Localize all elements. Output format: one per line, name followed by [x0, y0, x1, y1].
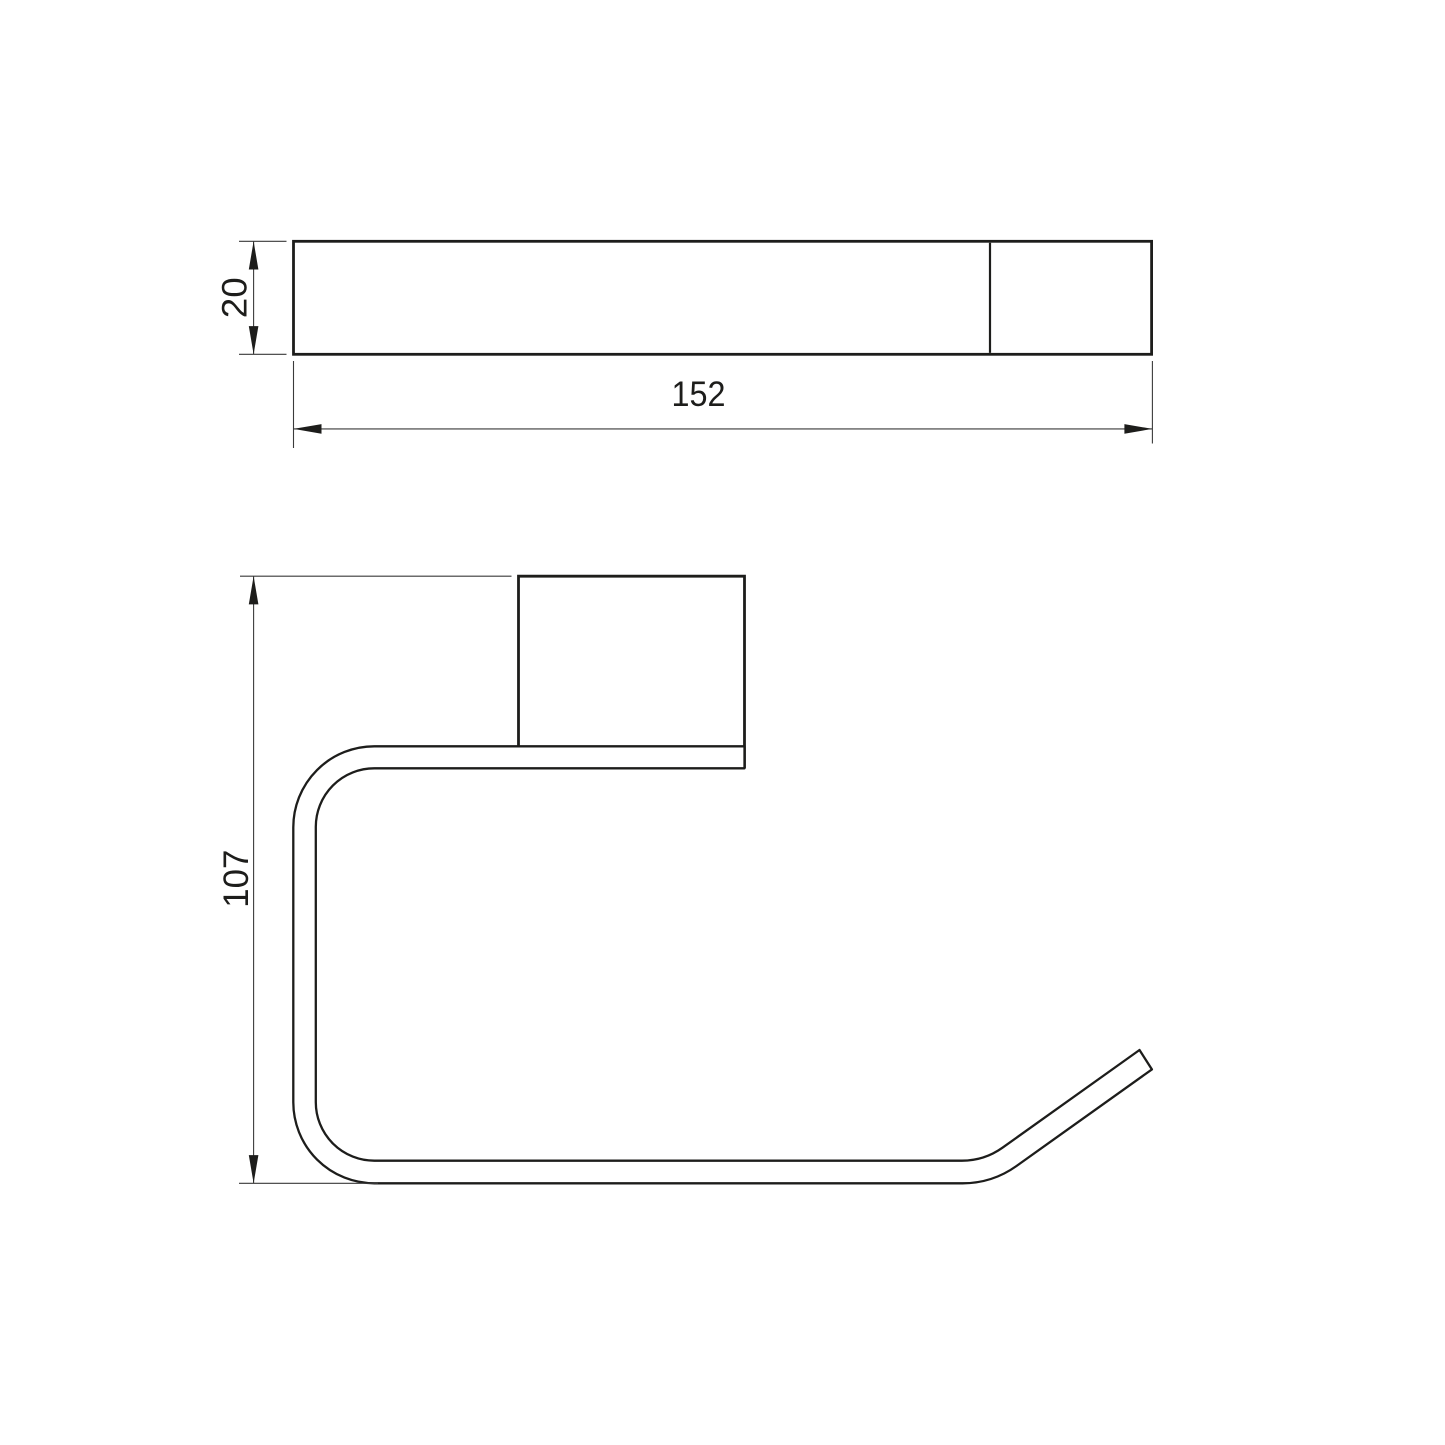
svg-text:152: 152: [672, 375, 726, 414]
svg-text:107: 107: [217, 850, 256, 908]
svg-text:20: 20: [216, 277, 255, 318]
